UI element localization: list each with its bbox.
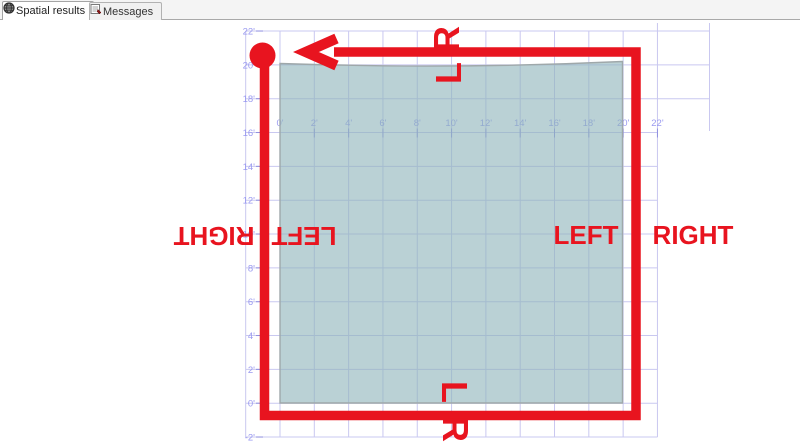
y-axis-label: 6' bbox=[248, 297, 255, 308]
spatial-results-window: Spatial results Messages 0'2'4'6'8'10'12… bbox=[0, 0, 800, 446]
x-axis-label: 22' bbox=[651, 118, 664, 129]
spatial-canvas-area: 0'2'4'6'8'10'12'14'16'18'20'22'22'20'18'… bbox=[0, 21, 800, 446]
label-right-inside: LEFT bbox=[554, 222, 619, 248]
y-axis-label: 16' bbox=[243, 128, 256, 139]
label-left-inside: LEFT bbox=[272, 223, 337, 249]
label-bottom-inside: L bbox=[436, 381, 472, 403]
y-axis-label: 12' bbox=[243, 196, 256, 207]
y-axis-label: 2' bbox=[248, 365, 255, 376]
y-axis-label: 4' bbox=[248, 331, 255, 342]
tab-messages[interactable]: Messages bbox=[89, 2, 162, 20]
y-axis-label: 22' bbox=[243, 27, 256, 38]
results-tab-strip: Spatial results Messages bbox=[0, 0, 800, 20]
label-right-outside: RIGHT bbox=[653, 222, 734, 248]
label-left-outside: RIGHT bbox=[174, 223, 255, 249]
y-axis-label: 14' bbox=[243, 162, 256, 173]
y-axis-label: 8' bbox=[248, 263, 255, 274]
label-top-inside: L bbox=[431, 62, 467, 84]
ring-start-point bbox=[250, 43, 276, 69]
tab-spatial-results[interactable]: Spatial results bbox=[2, 1, 94, 20]
tab-messages-label: Messages bbox=[103, 6, 153, 18]
tab-spatial-results-label: Spatial results bbox=[16, 5, 85, 17]
label-top-outside: R bbox=[429, 26, 465, 52]
label-bottom-outside: R bbox=[437, 416, 473, 442]
y-axis-label: 18' bbox=[243, 94, 256, 105]
y-axis-label: -2' bbox=[245, 433, 255, 444]
y-axis-label: 0' bbox=[248, 399, 255, 410]
ring-arrowhead-icon bbox=[306, 39, 337, 66]
